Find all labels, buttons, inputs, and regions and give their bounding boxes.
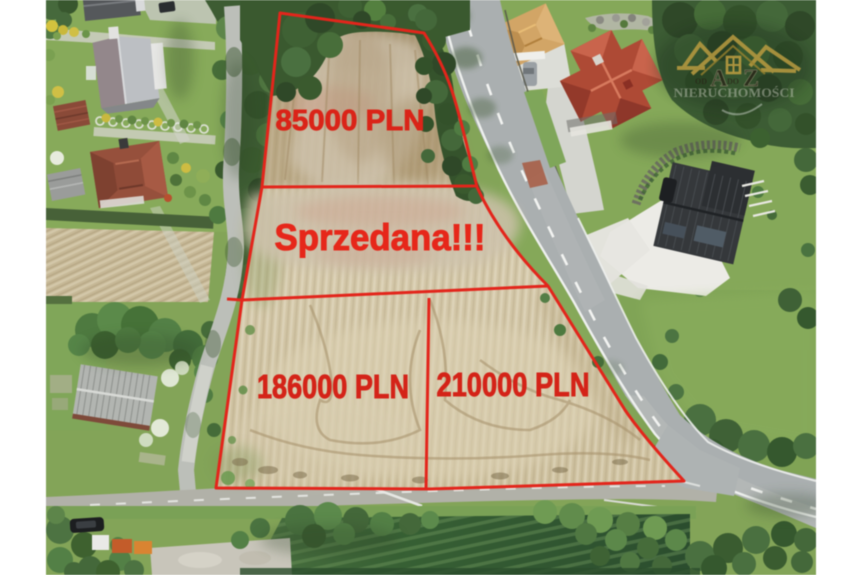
svg-text:85000 PLN: 85000 PLN bbox=[276, 105, 425, 137]
svg-text:Sprzedana!!!: Sprzedana!!! bbox=[275, 217, 486, 258]
svg-text:OD: OD bbox=[695, 77, 707, 86]
svg-text:DO: DO bbox=[727, 77, 739, 86]
svg-text:NIERUCHOMOŚCI: NIERUCHOMOŚCI bbox=[674, 86, 795, 100]
svg-text:210000 PLN: 210000 PLN bbox=[437, 366, 590, 403]
svg-text:186000 PLN: 186000 PLN bbox=[257, 368, 409, 405]
